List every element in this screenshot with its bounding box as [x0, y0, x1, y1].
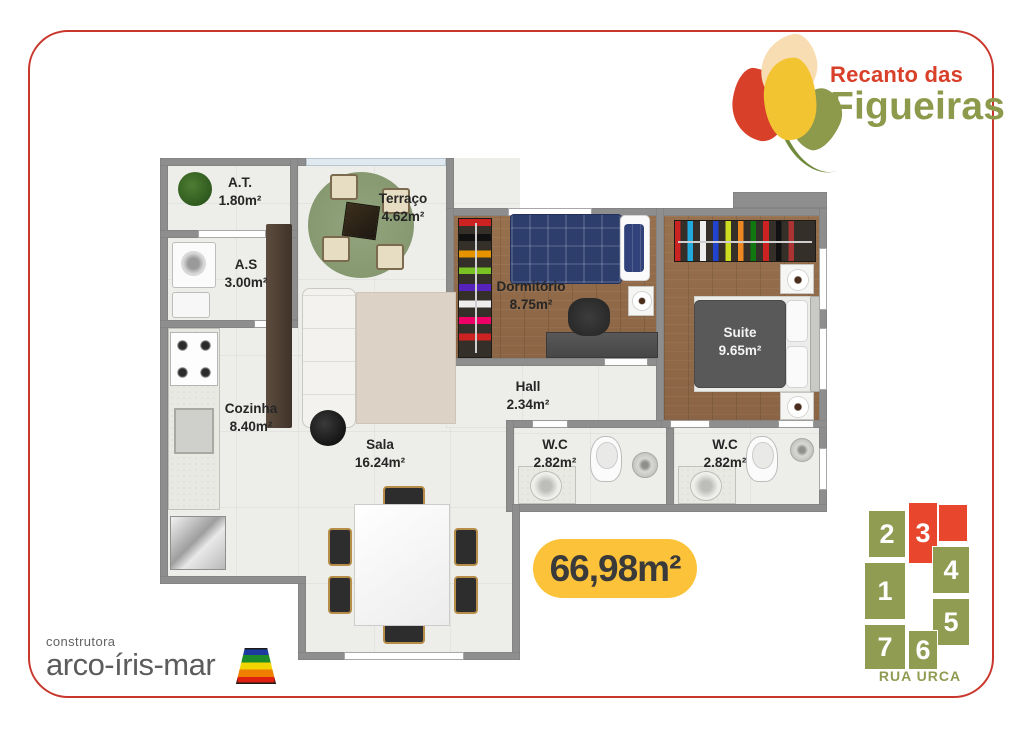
- window-terraco-glass: [306, 158, 446, 166]
- room-name: Sala: [340, 436, 420, 454]
- wc-right-shower: [790, 438, 814, 462]
- room-label-suite: Suite 9.65m²: [698, 324, 782, 359]
- window-suite-2: [819, 328, 827, 390]
- keyplan-unit-1: 1: [864, 562, 906, 620]
- room-area: 2.82m²: [518, 454, 592, 472]
- room-area: 3.00m²: [206, 274, 286, 292]
- door-dormitorio: [604, 358, 648, 366]
- window-sala: [344, 652, 464, 660]
- wall-suite-left: [656, 208, 664, 428]
- wc-left-counter: [518, 466, 576, 504]
- wc-left-toilet: [590, 436, 622, 482]
- brand-name-line2: Figueiras: [830, 87, 1005, 126]
- room-label-wc-right: W.C 2.82m²: [688, 436, 762, 471]
- brand-name-line1: Recanto das: [830, 64, 1005, 86]
- suite-nightstand: [780, 392, 814, 420]
- dorm-nightstand: [628, 286, 654, 316]
- wall-wc-top: [506, 420, 662, 428]
- window-at: [198, 230, 266, 238]
- suite-nightstand: [780, 264, 814, 294]
- sala-rug: [356, 292, 456, 424]
- room-name: W.C: [518, 436, 592, 454]
- window-suite-1: [819, 248, 827, 310]
- wall-suite-top-ledge: [733, 192, 827, 208]
- room-name: A.T.: [200, 174, 280, 192]
- suite-headboard: [810, 296, 820, 392]
- room-name: W.C: [688, 436, 762, 454]
- laundry-tank: [172, 292, 210, 318]
- room-area: 8.75m²: [476, 296, 586, 314]
- room-name: A.S: [206, 256, 286, 274]
- wc-left-shower: [632, 452, 658, 478]
- dorm-pillow-blue: [624, 224, 644, 272]
- dining-chair: [454, 528, 478, 566]
- door-wc-left: [532, 420, 568, 428]
- flyer-canvas: Recanto das Figueiras: [0, 0, 1024, 729]
- keyplan: 2 3 4 1 5 7 6: [860, 492, 980, 692]
- wall-wc-partition: [666, 428, 674, 512]
- wall-sala-right-upper: [506, 420, 514, 512]
- room-area: 16.24m²: [340, 454, 420, 472]
- room-label-as: A.S 3.00m²: [206, 256, 286, 291]
- suite-pillow: [786, 300, 808, 342]
- room-name: Hall: [488, 378, 568, 396]
- brand-text: Recanto das Figueiras: [830, 64, 1005, 126]
- room-label-terraco: Terraço 4.62m²: [358, 190, 448, 225]
- wall-kitchen-bottom: [160, 576, 306, 584]
- wall-outer-top-left: [160, 158, 306, 166]
- wc-right-counter: [678, 466, 736, 504]
- keyplan-unit-4: 4: [932, 546, 970, 594]
- room-name: Terraço: [358, 190, 448, 208]
- terraco-chair: [322, 236, 350, 262]
- room-label-cozinha: Cozinha 8.40m²: [206, 400, 296, 435]
- keyplan-unit-6: 6: [908, 630, 938, 670]
- keyplan-unit-7: 7: [864, 624, 906, 670]
- wall-left-step: [298, 576, 306, 660]
- room-area: 1.80m²: [200, 192, 280, 210]
- suite-wardrobe: [674, 220, 816, 262]
- room-area: 8.40m²: [206, 418, 296, 436]
- fridge: [170, 516, 226, 570]
- window-wc-right: [819, 448, 827, 490]
- brand-logo: Recanto das Figueiras: [732, 36, 1002, 156]
- room-label-sala: Sala 16.24m²: [340, 436, 420, 471]
- dorm-bed: [510, 214, 622, 284]
- dining-chair: [454, 576, 478, 614]
- keyplan-unit-2: 2: [868, 510, 906, 558]
- wall-wc-bottom: [506, 504, 827, 512]
- builder-logo: construtora arco-íris-mar: [46, 634, 276, 692]
- room-name: Cozinha: [206, 400, 296, 418]
- dining-chair: [328, 576, 352, 614]
- door-suite: [670, 420, 710, 428]
- room-name: Suite: [698, 324, 782, 342]
- sofa: [302, 288, 356, 428]
- wall-sala-right-outer: [512, 504, 520, 660]
- room-area: 2.82m²: [688, 454, 762, 472]
- room-area: 4.62m²: [358, 208, 448, 226]
- total-area-badge: 66,98m²: [533, 539, 697, 598]
- room-name: Dormitório: [476, 278, 586, 296]
- room-label-dormitorio: Dormitório 8.75m²: [476, 278, 586, 313]
- keyplan-unit-3-wing: [938, 504, 968, 542]
- terraco-chair: [376, 244, 404, 270]
- wall-outer-left: [160, 158, 168, 584]
- floor-plan: A.T. 1.80m² A.S 3.00m² Terraço 4.62m² Do…: [158, 152, 832, 672]
- tv-panel: [266, 224, 292, 428]
- door-wc-right: [778, 420, 814, 428]
- room-label-hall: Hall 2.34m²: [488, 378, 568, 413]
- dining-table: [354, 504, 450, 626]
- street-label: RUA URCA: [860, 668, 980, 684]
- suite-pillow: [786, 346, 808, 388]
- room-label-wc-left: W.C 2.82m²: [518, 436, 592, 471]
- dining-chair: [328, 528, 352, 566]
- dorm-desk: [546, 332, 658, 358]
- stove: [170, 332, 218, 386]
- room-area: 9.65m²: [698, 342, 782, 360]
- room-label-at: A.T. 1.80m²: [200, 174, 280, 209]
- terraco-chair: [330, 174, 358, 200]
- room-area: 2.34m²: [488, 396, 568, 414]
